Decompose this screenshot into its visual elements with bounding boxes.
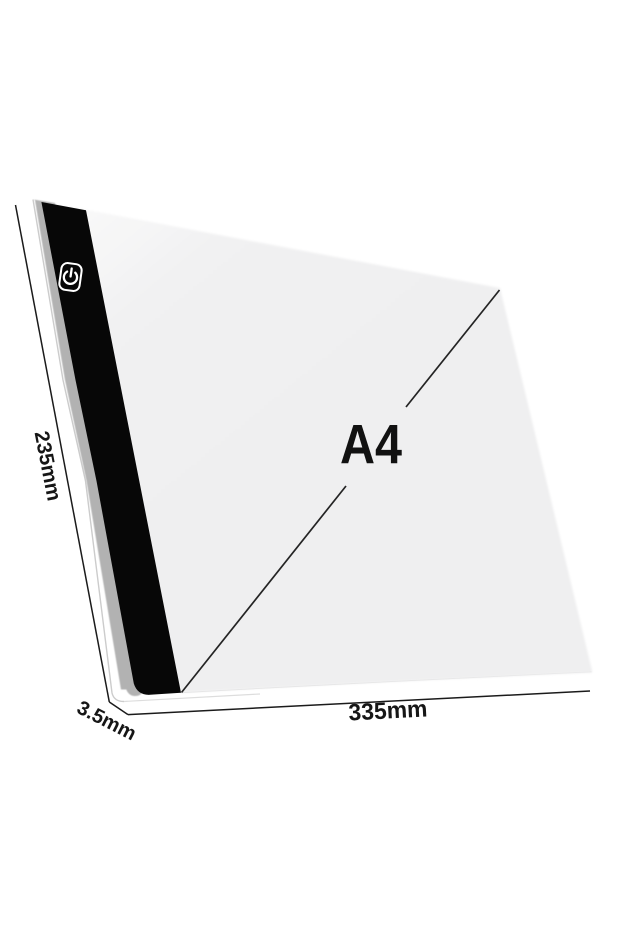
svg-text:3.5mm: 3.5mm: [73, 697, 139, 745]
svg-text:A4: A4: [340, 413, 402, 476]
svg-text:335mm: 335mm: [348, 695, 428, 725]
